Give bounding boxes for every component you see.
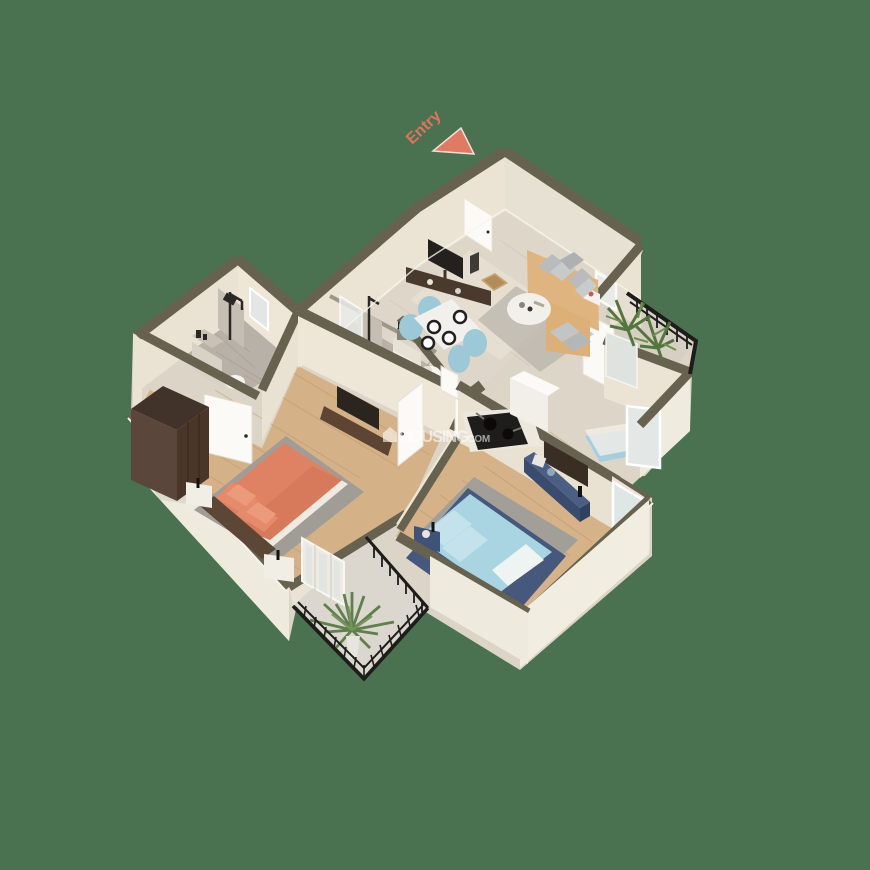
svg-text:HOUSING: HOUSING [399, 428, 468, 446]
svg-text:.COM: .COM [465, 434, 490, 445]
